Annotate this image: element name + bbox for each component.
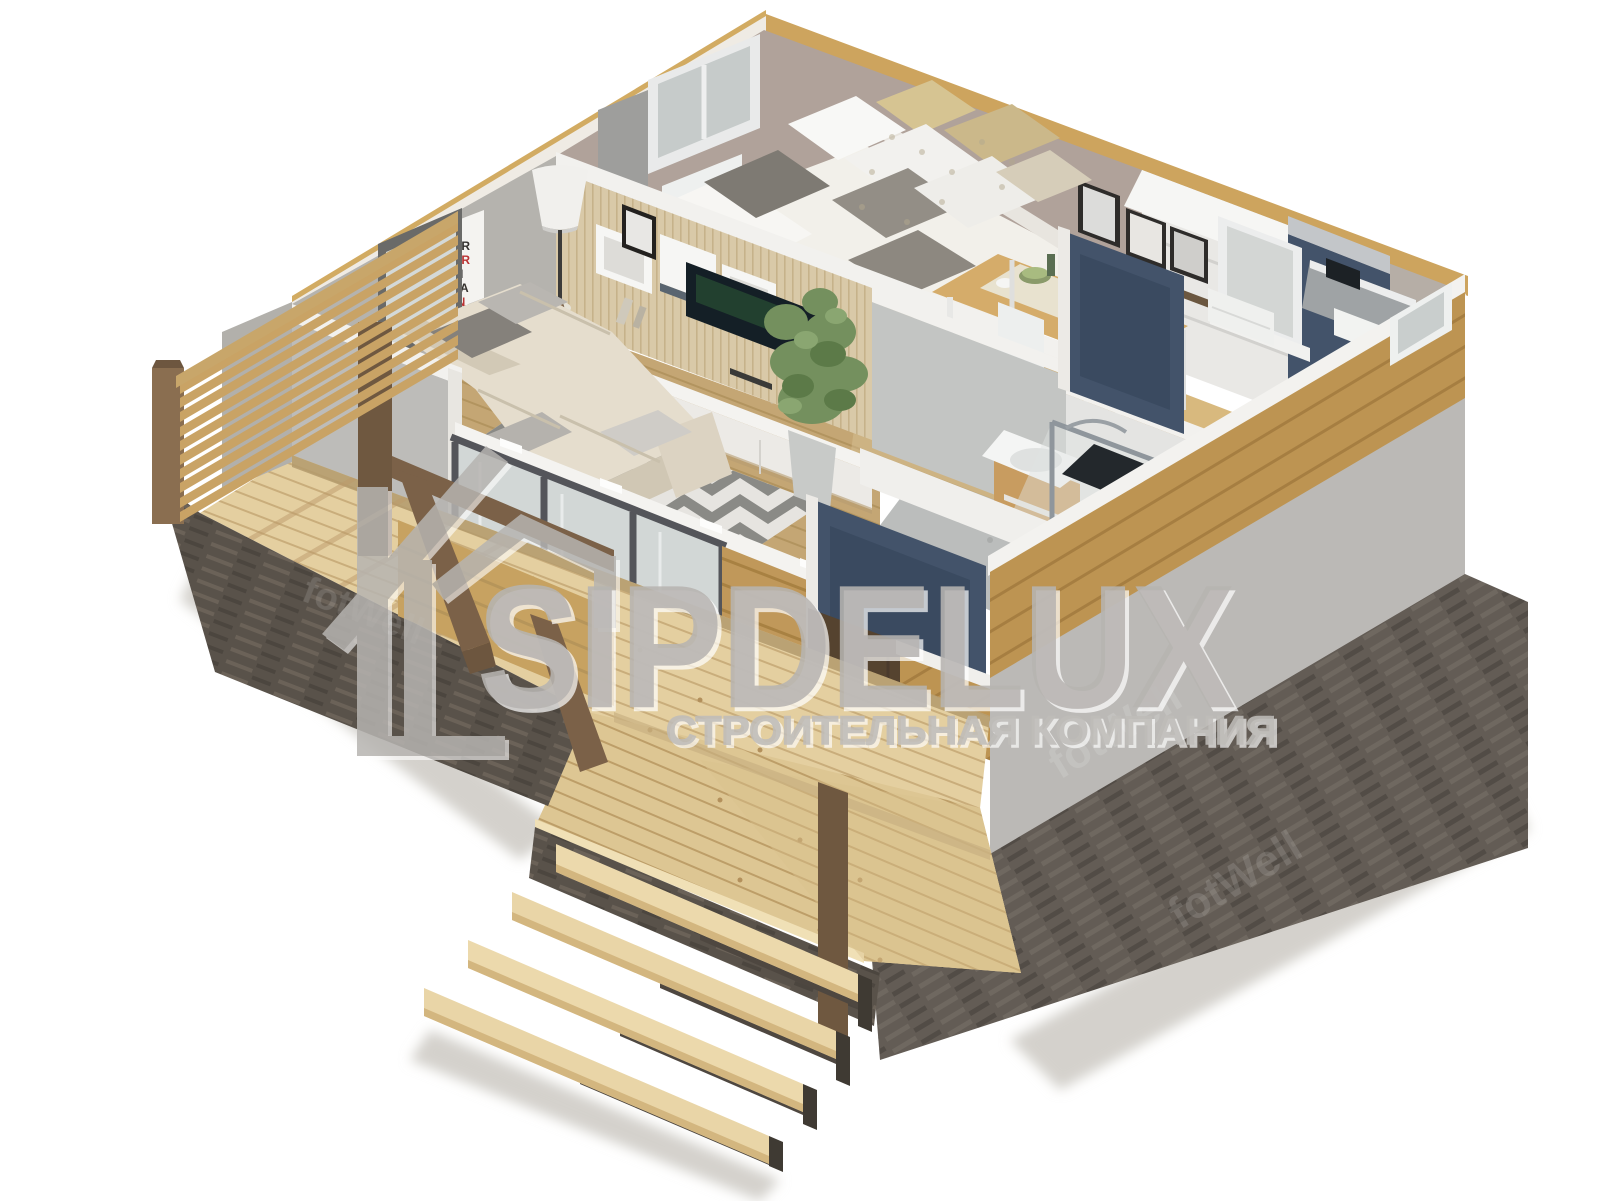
svg-text:СТРОИТЕЛЬНАЯ КОМПАНИЯ: СТРОИТЕЛЬНАЯ КОМПАНИЯ: [666, 709, 1276, 753]
